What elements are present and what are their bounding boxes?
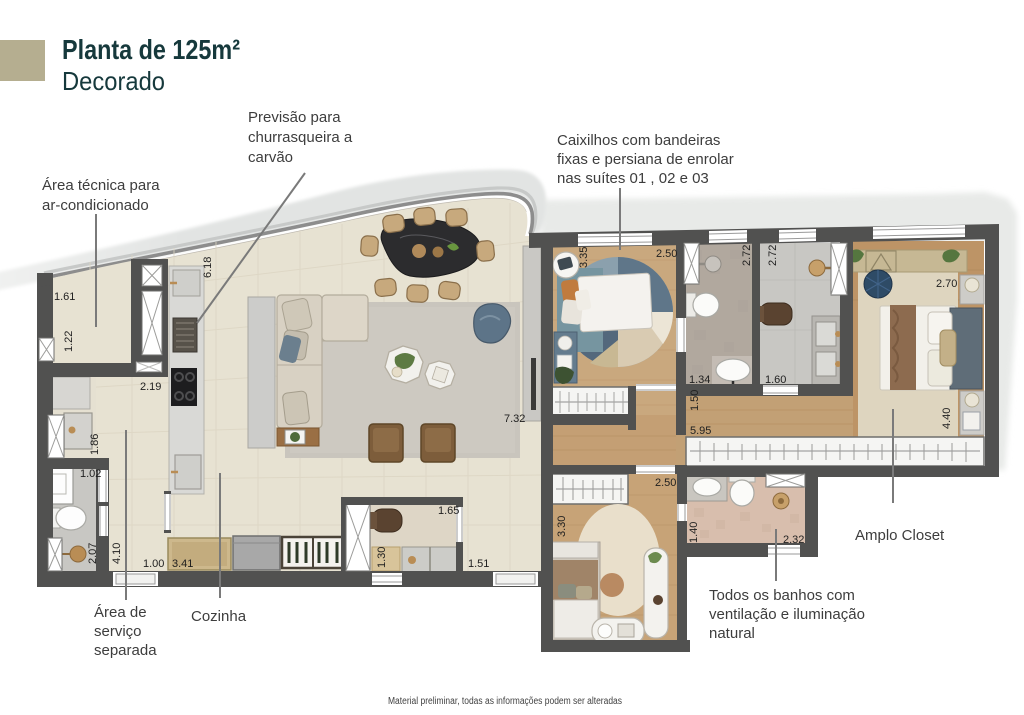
- svg-text:Material preliminar, todas as: Material preliminar, todas as informaçõe…: [388, 696, 622, 707]
- svg-text:Área de: Área de: [94, 604, 147, 621]
- svg-text:ar-condicionado: ar-condicionado: [42, 197, 149, 214]
- svg-text:2.70: 2.70: [936, 278, 957, 290]
- svg-text:2.32: 2.32: [783, 534, 804, 546]
- svg-text:serviço: serviço: [94, 623, 142, 640]
- svg-text:4.10: 4.10: [111, 543, 123, 564]
- svg-text:2.19: 2.19: [140, 381, 161, 393]
- svg-text:1.02: 1.02: [80, 468, 101, 480]
- svg-text:separada: separada: [94, 642, 157, 659]
- svg-text:1.86: 1.86: [89, 434, 101, 455]
- svg-text:1.30: 1.30: [376, 547, 388, 568]
- svg-text:1.60: 1.60: [765, 374, 786, 386]
- svg-text:2.50: 2.50: [655, 477, 676, 489]
- svg-text:fixas e persiana de enrolar: fixas e persiana de enrolar: [557, 151, 734, 168]
- svg-text:carvão: carvão: [248, 149, 293, 166]
- svg-text:ventilação e iluminação: ventilação e iluminação: [709, 606, 865, 623]
- svg-text:3.41: 3.41: [172, 558, 193, 570]
- svg-text:7.32: 7.32: [504, 413, 525, 425]
- svg-text:3.35: 3.35: [578, 247, 590, 268]
- svg-text:1.51: 1.51: [468, 558, 489, 570]
- svg-text:1.61: 1.61: [54, 291, 75, 303]
- svg-text:5.95: 5.95: [690, 425, 711, 437]
- svg-text:1.34: 1.34: [689, 374, 710, 386]
- svg-text:4.40: 4.40: [941, 408, 953, 429]
- svg-text:Planta de 125m²: Planta de 125m²: [62, 34, 240, 65]
- svg-text:2.07: 2.07: [87, 543, 99, 564]
- svg-text:2.72: 2.72: [741, 245, 753, 266]
- svg-text:nas suítes 01 , 02 e 03: nas suítes 01 , 02 e 03: [557, 170, 709, 187]
- svg-text:Todos os banhos com: Todos os banhos com: [709, 587, 855, 604]
- svg-text:Área técnica para: Área técnica para: [42, 177, 160, 194]
- svg-text:2.72: 2.72: [767, 245, 779, 266]
- svg-text:1.40: 1.40: [688, 522, 700, 543]
- svg-text:Caixilhos com bandeiras: Caixilhos com bandeiras: [557, 132, 720, 149]
- svg-text:2.50: 2.50: [656, 248, 677, 260]
- svg-text:churrasqueira a: churrasqueira a: [248, 129, 353, 146]
- svg-text:1.50: 1.50: [689, 390, 701, 411]
- svg-text:3.30: 3.30: [556, 516, 568, 537]
- svg-text:Cozinha: Cozinha: [191, 608, 247, 625]
- svg-text:1.00: 1.00: [143, 558, 164, 570]
- svg-text:natural: natural: [709, 625, 755, 642]
- svg-text:1.65: 1.65: [438, 505, 459, 517]
- svg-text:Decorado: Decorado: [62, 66, 165, 96]
- svg-text:Previsão para: Previsão para: [248, 109, 341, 126]
- svg-text:6.18: 6.18: [202, 257, 214, 278]
- svg-text:Amplo Closet: Amplo Closet: [855, 527, 945, 544]
- svg-text:1.22: 1.22: [63, 331, 75, 352]
